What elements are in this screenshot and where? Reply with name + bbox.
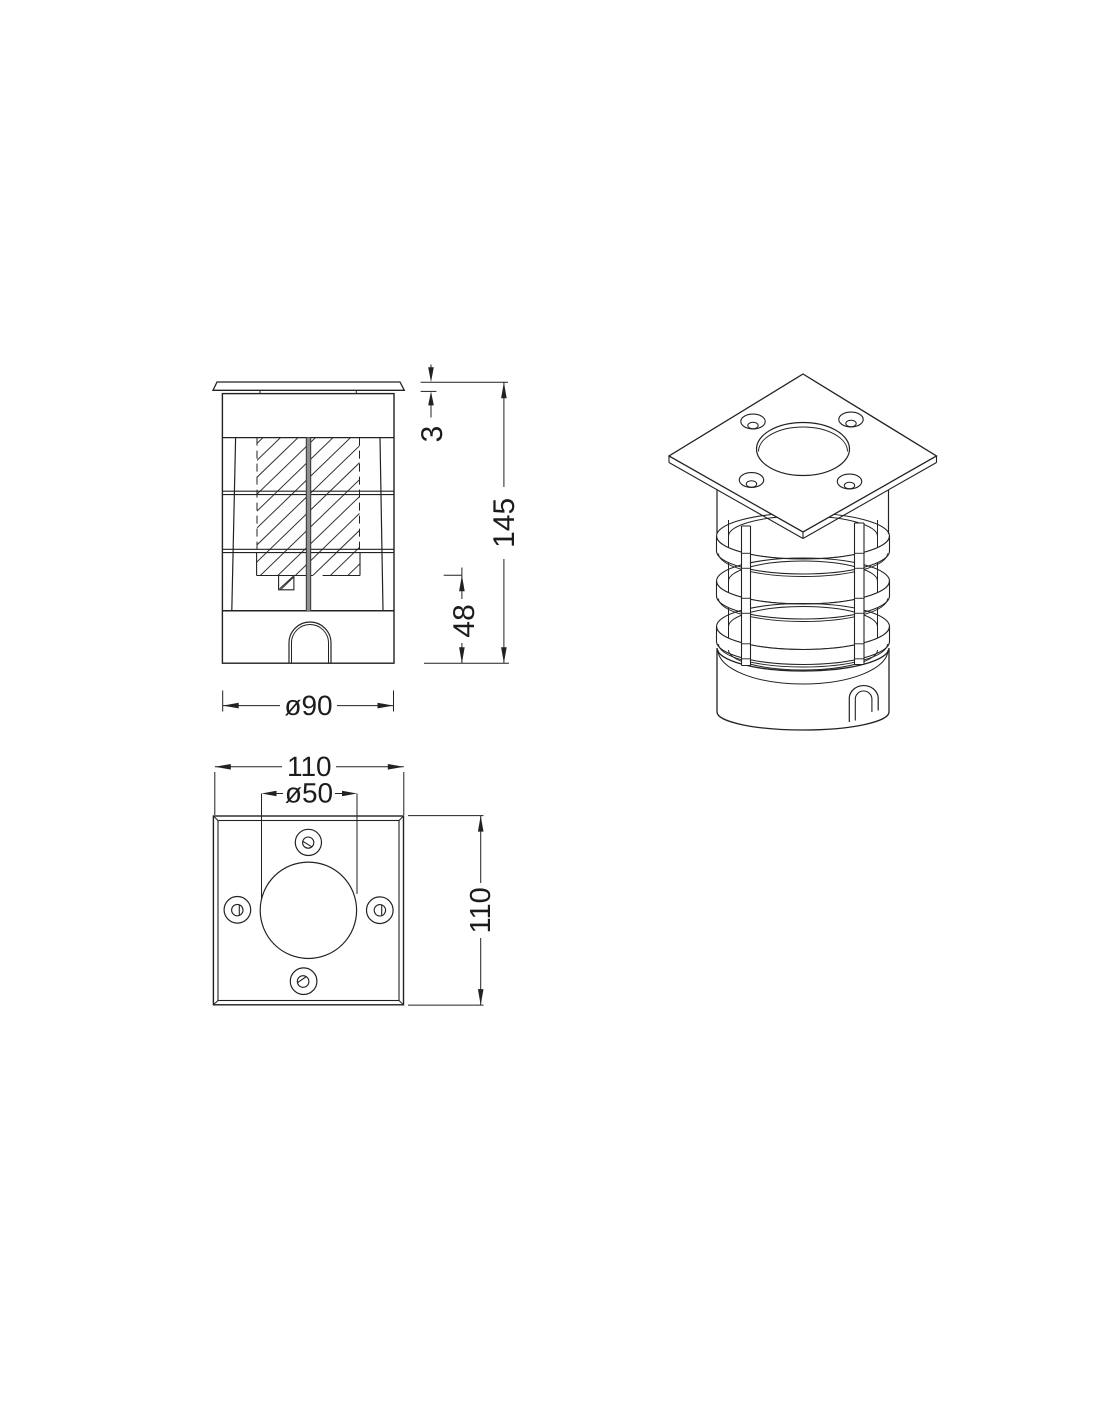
svg-text:ø90: ø90 <box>284 690 332 721</box>
svg-text:110: 110 <box>465 887 497 933</box>
svg-text:145: 145 <box>488 498 521 548</box>
svg-text:48: 48 <box>448 604 481 637</box>
svg-text:3: 3 <box>416 426 449 443</box>
svg-text:ø50: ø50 <box>285 778 333 809</box>
